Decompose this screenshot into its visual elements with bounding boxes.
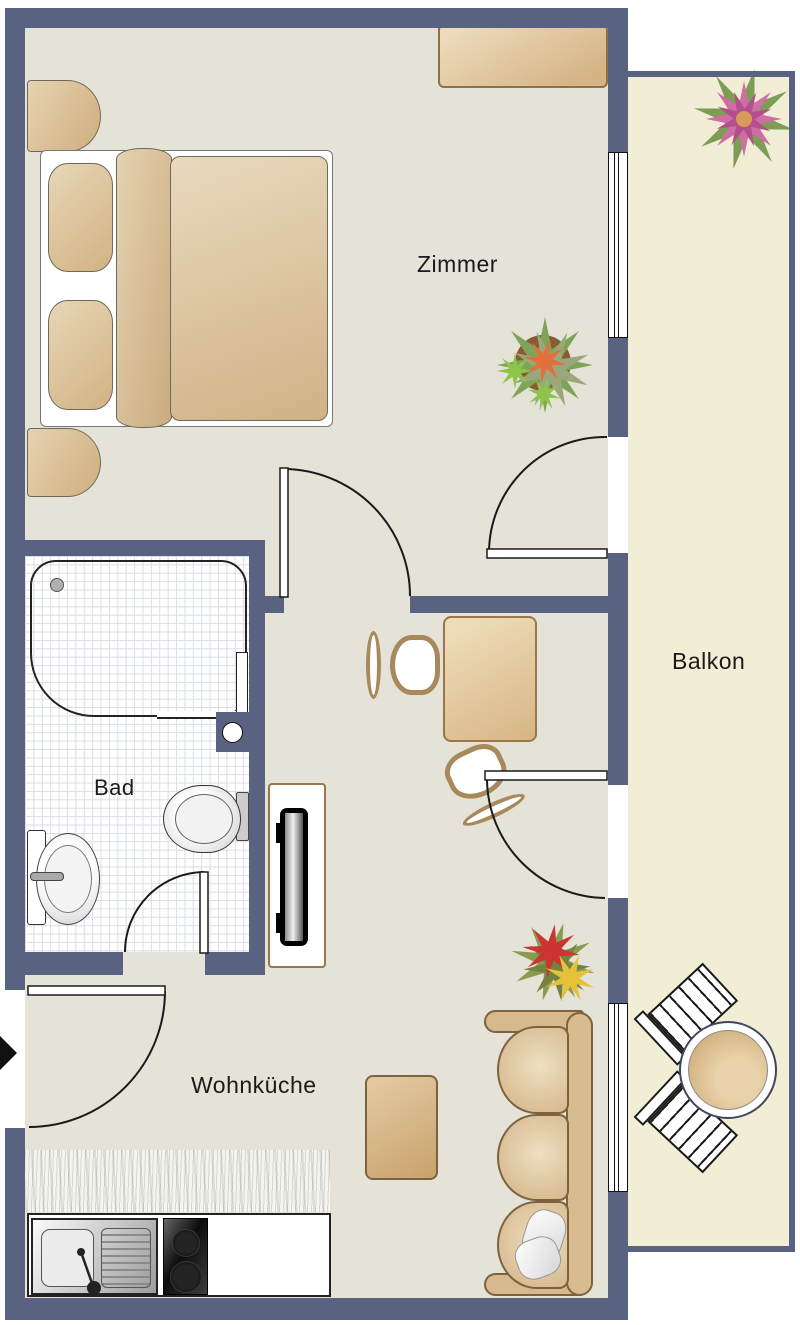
- toilet-seat: [175, 794, 233, 844]
- balcony-table-top: [688, 1030, 768, 1110]
- room-label-wohnkueche: Wohnküche: [191, 1072, 317, 1099]
- bed-pillow-top: [48, 163, 113, 272]
- wall-right-4: [608, 898, 628, 1003]
- kitchen-rug: [25, 1150, 330, 1212]
- nightstand-bottom: [27, 428, 101, 497]
- room-label-balkon: Balkon: [672, 648, 745, 675]
- coffee-table: [365, 1075, 438, 1180]
- room-label-bad: Bad: [94, 775, 135, 801]
- tv: [280, 808, 308, 946]
- kitchen-sink-basin: [41, 1229, 94, 1287]
- plant-wohnkueche: [508, 922, 600, 1004]
- wall-right-5: [608, 1192, 628, 1320]
- wall-bathroom-top: [25, 540, 265, 556]
- kitchen-drainboard: [101, 1228, 151, 1288]
- chair-backrest: [366, 631, 381, 699]
- bed-duvet: [170, 156, 328, 421]
- entrance-arrow-icon: [0, 1036, 17, 1070]
- wall-bottom: [5, 1298, 628, 1320]
- wall-left-lower: [5, 1128, 25, 1320]
- burner-icon: [170, 1261, 202, 1293]
- window-zimmer: [608, 152, 628, 338]
- chair-seat: [390, 635, 440, 695]
- sofa-backrest: [566, 1012, 593, 1296]
- bed-blanket-fold: [116, 148, 172, 428]
- balcony-railing-right: [789, 71, 795, 1252]
- shower-door-side: [236, 652, 248, 716]
- plant-balkon: [693, 68, 795, 170]
- plant-zimmer: [497, 317, 593, 413]
- bed-pillow-bottom: [48, 300, 113, 410]
- nightstand-top: [27, 80, 101, 152]
- sofa-cushion: [497, 1026, 569, 1114]
- wall-right-1: [608, 8, 628, 152]
- wardrobe: [438, 24, 608, 88]
- balcony-railing-bottom: [628, 1246, 789, 1252]
- wall-zimmer-right: [410, 596, 628, 613]
- shower-drain-icon: [50, 578, 64, 592]
- wall-right-2: [608, 338, 628, 437]
- dining-chair-left: [366, 628, 446, 704]
- wall-bathroom-bottom-left: [25, 952, 123, 975]
- wall-right-3: [608, 553, 628, 785]
- sofa-cushion: [497, 1114, 569, 1201]
- wall-zimmer-left: [249, 596, 284, 613]
- room-label-zimmer: Zimmer: [417, 251, 498, 278]
- sink-tap-icon: [30, 872, 64, 881]
- dining-table: [443, 616, 537, 742]
- floor-plan: Zimmer Bad Balkon Wohnküche: [0, 0, 800, 1325]
- balcony-railing-top: [628, 71, 795, 77]
- window-wohnkueche: [608, 1003, 628, 1192]
- wall-bathroom-bottom-right: [205, 952, 265, 975]
- tv-screen: [285, 813, 303, 941]
- pipe-icon: [222, 722, 243, 743]
- wall-left-upper: [5, 8, 25, 990]
- burner-icon: [172, 1229, 200, 1257]
- wall-top: [5, 8, 628, 28]
